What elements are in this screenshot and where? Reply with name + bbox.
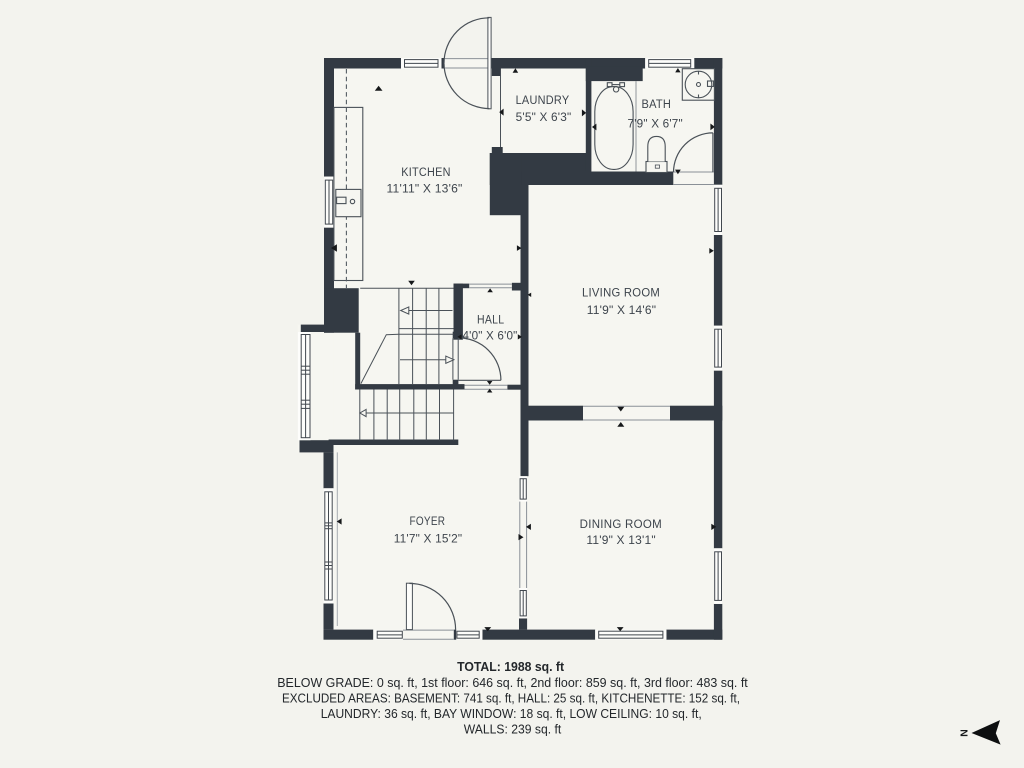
svg-text:WALLS: 239 sq. ft: WALLS: 239 sq. ft <box>464 723 562 737</box>
svg-text:TOTAL: 1988 sq. ft: TOTAL: 1988 sq. ft <box>457 659 565 674</box>
svg-text:LAUNDRY: LAUNDRY <box>516 93 570 107</box>
svg-text:HALL: HALL <box>477 313 504 327</box>
svg-text:7'9" X 6'7": 7'9" X 6'7" <box>628 116 683 130</box>
svg-text:BELOW GRADE: 0 sq. ft, 1st flo: BELOW GRADE: 0 sq. ft, 1st floor: 646 sq… <box>277 676 748 690</box>
svg-text:DINING ROOM: DINING ROOM <box>580 517 662 531</box>
svg-text:11'9" X 14'6": 11'9" X 14'6" <box>587 303 657 317</box>
svg-text:5'5" X 6'3": 5'5" X 6'3" <box>516 110 572 124</box>
svg-text:LIVING ROOM: LIVING ROOM <box>582 285 660 299</box>
svg-text:4'0" X 6'0": 4'0" X 6'0" <box>463 329 518 343</box>
svg-text:EXCLUDED AREAS: BASEMENT: 741: EXCLUDED AREAS: BASEMENT: 741 sq. ft, HA… <box>282 692 740 706</box>
svg-text:FOYER: FOYER <box>410 514 446 528</box>
svg-text:N: N <box>958 729 970 737</box>
svg-text:KITCHEN: KITCHEN <box>401 165 451 179</box>
svg-text:11'7" X 15'2": 11'7" X 15'2" <box>394 531 463 545</box>
svg-text:BATH: BATH <box>641 97 671 111</box>
svg-text:11'9" X 13'1": 11'9" X 13'1" <box>586 533 655 547</box>
svg-text:11'11" X 13'6": 11'11" X 13'6" <box>387 182 463 196</box>
svg-text:LAUNDRY: 36 sq. ft, BAY WINDOW: LAUNDRY: 36 sq. ft, BAY WINDOW: 18 sq. f… <box>321 707 702 721</box>
